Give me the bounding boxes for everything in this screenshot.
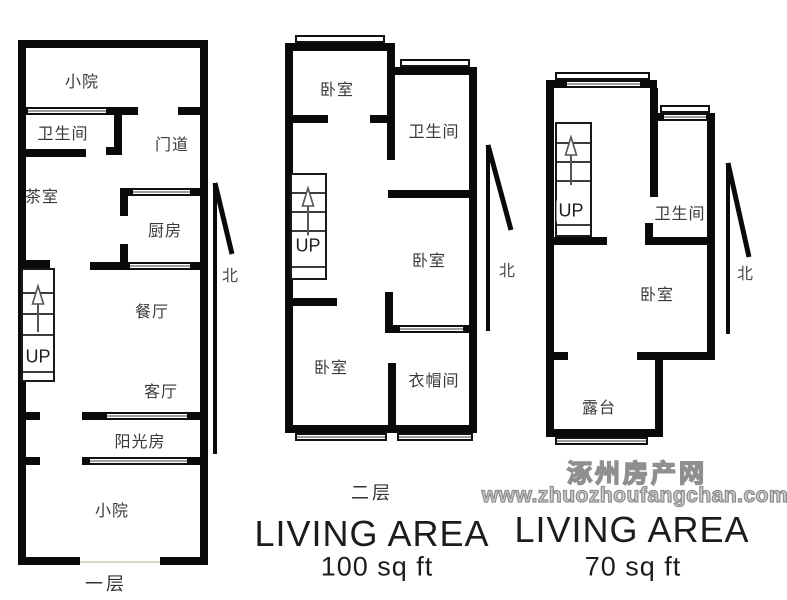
window	[90, 457, 187, 465]
stair-direction-arrow-icon	[300, 184, 316, 240]
stair-step	[23, 334, 53, 336]
wall	[285, 43, 395, 51]
room-label-yard-bottom: 小院	[95, 497, 129, 521]
stair-up-label: UP	[23, 347, 52, 368]
room-label-bathroom: 卫生间	[37, 120, 88, 144]
room-label-bathroom: 卫生间	[408, 118, 459, 142]
wall	[106, 147, 114, 155]
window-sill	[660, 105, 710, 113]
window	[567, 80, 640, 88]
wall	[388, 190, 477, 198]
wall	[18, 149, 86, 157]
room-label-bedroom-bottom: 卧室	[314, 354, 348, 378]
wall	[18, 457, 40, 465]
living-area-title: LIVING AREA	[514, 509, 749, 551]
window	[664, 113, 706, 121]
room-label-yard-top: 小院	[65, 68, 99, 92]
room-label-doorway: 门道	[155, 131, 189, 155]
room-label-tea-room: 茶室	[25, 183, 59, 207]
window-sill	[295, 35, 385, 43]
north-label: 北	[222, 262, 238, 286]
wall	[18, 260, 50, 268]
north-label: 北	[499, 257, 515, 281]
wall	[114, 107, 122, 155]
window-sill	[295, 433, 387, 441]
room-label-bedroom-top: 卧室	[320, 76, 354, 100]
room-label-bedroom-middle: 卧室	[412, 247, 446, 271]
wall	[385, 292, 393, 333]
room-label-dining: 餐厅	[135, 298, 169, 322]
floor-plan-sheet: 小院 卫生间 门道 茶室 厨房 餐厅 UP 客厅 阳光房 小院 一层 北	[0, 0, 787, 600]
room-label-terrace: 露台	[582, 394, 616, 418]
wall	[650, 88, 658, 197]
wall	[387, 43, 395, 160]
wall	[546, 352, 568, 360]
wall	[178, 107, 208, 115]
north-arrow-icon	[481, 140, 517, 336]
stair-step	[557, 224, 590, 226]
north-label: 北	[737, 260, 753, 284]
wall	[18, 557, 80, 565]
wall	[645, 237, 715, 245]
wall	[546, 429, 663, 437]
wall	[546, 237, 607, 245]
wall	[285, 115, 328, 123]
watermark-site-url: www.zhuozhoufangchan.com	[482, 484, 787, 508]
wall	[285, 298, 337, 306]
door-threshold	[80, 561, 160, 563]
wall	[370, 115, 395, 123]
north-arrow-icon	[208, 178, 238, 460]
room-label-living: 客厅	[144, 378, 178, 402]
north-arrow-icon	[721, 158, 755, 340]
window	[400, 325, 463, 333]
living-area-value: 70 sq ft	[585, 552, 682, 583]
wall	[395, 67, 477, 75]
living-area-title: LIVING AREA	[254, 513, 489, 555]
window	[130, 262, 190, 270]
stair-up-label: UP	[293, 236, 322, 257]
stair-step	[23, 371, 53, 373]
stair-direction-arrow-icon	[30, 282, 46, 334]
window	[28, 107, 106, 115]
wall	[655, 352, 663, 437]
window	[133, 188, 190, 196]
room-label-bathroom: 卫生间	[654, 200, 705, 224]
room-label-sunroom: 阳光房	[114, 428, 165, 452]
stair-step	[292, 266, 325, 268]
window	[107, 412, 187, 420]
living-area-value: 100 sq ft	[321, 552, 434, 583]
wall	[388, 363, 396, 433]
wall	[160, 557, 208, 565]
wall	[200, 40, 208, 565]
wall	[18, 412, 40, 420]
room-label-bedroom: 卧室	[640, 281, 674, 305]
stair-direction-arrow-icon	[563, 133, 579, 189]
floor-name-label: 一层	[85, 570, 127, 596]
wall	[285, 425, 477, 433]
wall	[546, 80, 554, 437]
room-label-cloakroom: 衣帽间	[408, 367, 459, 391]
floor-name-label: 二层	[351, 479, 393, 505]
wall	[469, 67, 477, 433]
stair-up-label: UP	[556, 201, 585, 222]
window-sill	[397, 433, 473, 441]
wall	[18, 40, 208, 48]
wall	[120, 188, 128, 216]
window-sill	[555, 72, 650, 80]
room-label-kitchen: 厨房	[148, 217, 182, 241]
window-sill	[555, 437, 648, 445]
wall	[637, 352, 715, 360]
window-sill	[400, 59, 470, 67]
